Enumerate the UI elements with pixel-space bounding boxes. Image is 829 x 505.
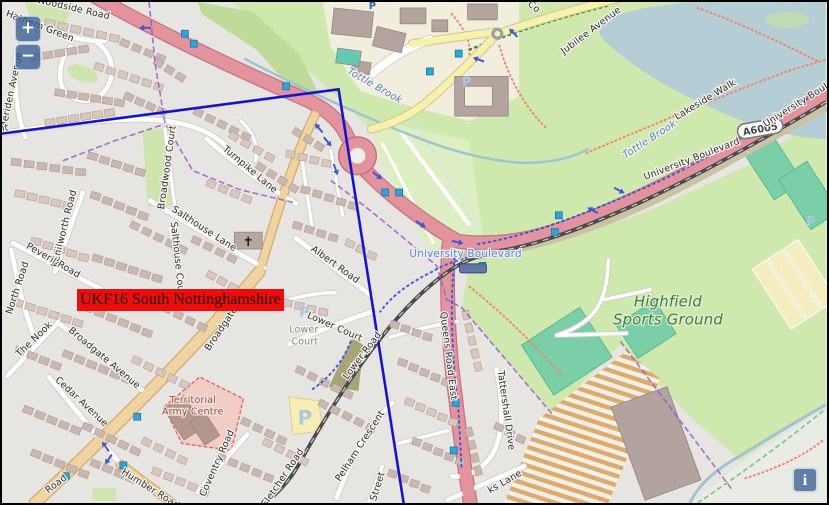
- building: [66, 47, 77, 55]
- map-label: University Boulevard: [409, 248, 521, 260]
- map-label: Court: [291, 336, 318, 347]
- node-marker: [426, 68, 433, 75]
- map-label: Highfield: [634, 293, 702, 311]
- building: [114, 99, 125, 107]
- building: [80, 112, 91, 120]
- building: [285, 150, 295, 158]
- zoom-out-button[interactable]: −: [15, 44, 41, 70]
- building: [50, 164, 60, 172]
- zoom-controls: + −: [15, 16, 41, 72]
- node-marker: [134, 413, 141, 420]
- map-label: Army Centre: [162, 407, 224, 418]
- roundabout: [339, 137, 377, 175]
- node-marker: [396, 189, 403, 196]
- parking-icon: P: [369, 2, 376, 12]
- node-marker: [452, 399, 459, 406]
- node-marker: [555, 212, 562, 219]
- map-label: Sports Ground: [613, 310, 723, 328]
- parking-icon: P: [462, 75, 471, 90]
- node-marker: [551, 229, 558, 236]
- building: [68, 114, 79, 122]
- building: [37, 162, 47, 170]
- region-overlay-label: UKF16 South Nottinghamshire: [77, 289, 284, 311]
- building: [78, 45, 89, 53]
- building: [90, 95, 101, 103]
- building: [297, 153, 307, 161]
- map-label: Lower: [289, 324, 318, 335]
- church-icon: ✝: [243, 235, 254, 250]
- tram-stop-icon: [460, 264, 487, 273]
- map-window: PPPPP✝A6005Woodside RoadHathern GreenMer…: [0, 0, 829, 505]
- node-marker: [181, 30, 188, 37]
- node-marker: [283, 83, 290, 90]
- building: [309, 156, 319, 164]
- building: [15, 190, 26, 199]
- parking-icon: P: [298, 407, 313, 430]
- building: [45, 118, 56, 126]
- building: [63, 166, 73, 174]
- node-marker: [455, 50, 462, 57]
- building: [50, 199, 61, 208]
- building: [283, 299, 293, 307]
- building: [56, 116, 67, 124]
- info-button[interactable]: i: [792, 467, 818, 493]
- zoom-in-button[interactable]: +: [15, 16, 41, 42]
- building: [43, 51, 54, 59]
- building: [92, 110, 103, 118]
- map-canvas[interactable]: PPPPP✝A6005Woodside RoadHathern GreenMer…: [2, 2, 827, 503]
- building: [54, 89, 65, 97]
- building: [11, 158, 21, 166]
- building: [27, 193, 38, 202]
- node-marker: [382, 189, 389, 196]
- building: [78, 93, 89, 101]
- node-marker: [190, 40, 197, 47]
- node-marker: [450, 447, 457, 454]
- map-label: Territorial: [168, 395, 216, 406]
- building: [321, 159, 331, 167]
- building: [104, 108, 115, 116]
- parking-icon: P: [806, 215, 815, 230]
- building: [38, 196, 49, 205]
- building: [54, 49, 65, 57]
- building: [24, 160, 34, 168]
- building: [66, 91, 77, 99]
- building: [102, 97, 113, 105]
- building: [75, 168, 85, 176]
